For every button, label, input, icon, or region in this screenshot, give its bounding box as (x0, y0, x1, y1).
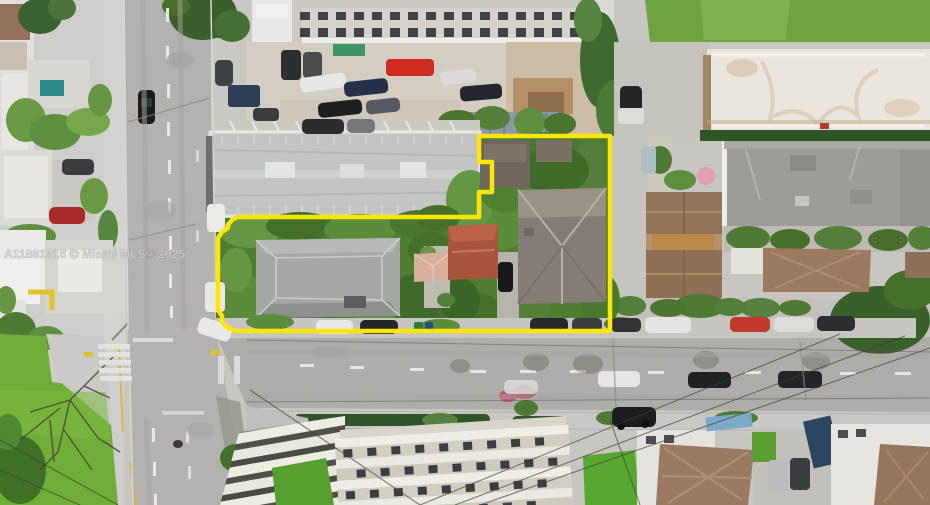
svg-text:A11881916 © Miami MLS® 2025: A11881916 © Miami MLS® 2025 (4, 247, 185, 261)
